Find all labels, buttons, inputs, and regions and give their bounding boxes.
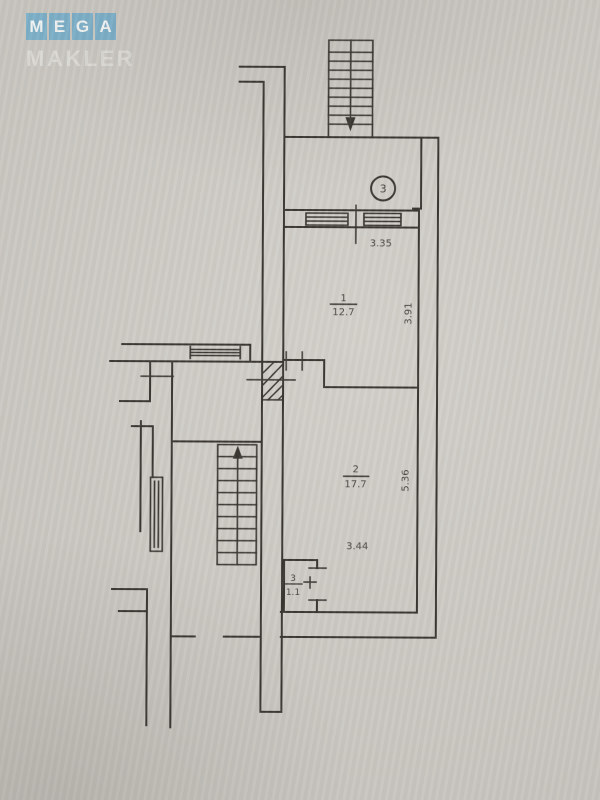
- window-icon: [190, 346, 240, 358]
- scanned-floorplan-photo: M E G A MAKLER: [0, 0, 600, 800]
- hatched-wall: [262, 362, 283, 400]
- walls: [108, 66, 438, 729]
- window-icon: [150, 477, 162, 551]
- window-icon: [306, 213, 348, 225]
- room-3-label: 3 1.1: [285, 574, 302, 598]
- room-1-label: 1 12.7: [330, 293, 356, 318]
- windows: [150, 212, 401, 552]
- room-number: 3: [290, 574, 296, 584]
- dimension-room1-depth: 3.91: [403, 302, 414, 324]
- dimension-entry-width: 3.35: [370, 238, 392, 249]
- staircase-middle: [217, 445, 257, 565]
- room-area: 12.7: [332, 307, 354, 318]
- room-number: 2: [352, 464, 358, 475]
- circled-number-value: 3: [380, 182, 387, 195]
- floorplan-drawing: 3 1 12.7 2 17.7 3 1.1 3.35 3.91 5.36 3.4…: [0, 0, 600, 800]
- window-icon: [364, 213, 401, 225]
- room-number: 1: [340, 293, 346, 304]
- dimension-labels: 3.35 3.91 5.36 3.44: [346, 238, 415, 552]
- room-2-label: 2 17.7: [344, 464, 369, 490]
- circled-number: 3: [371, 176, 395, 200]
- staircase-top: [328, 40, 373, 137]
- room-area: 17.7: [344, 479, 366, 490]
- stairs-up-arrow-icon: [233, 446, 243, 459]
- room-area: 1.1: [286, 588, 300, 598]
- dimension-room2-width: 3.44: [346, 541, 368, 552]
- dimension-room2-depth: 5.36: [401, 469, 412, 491]
